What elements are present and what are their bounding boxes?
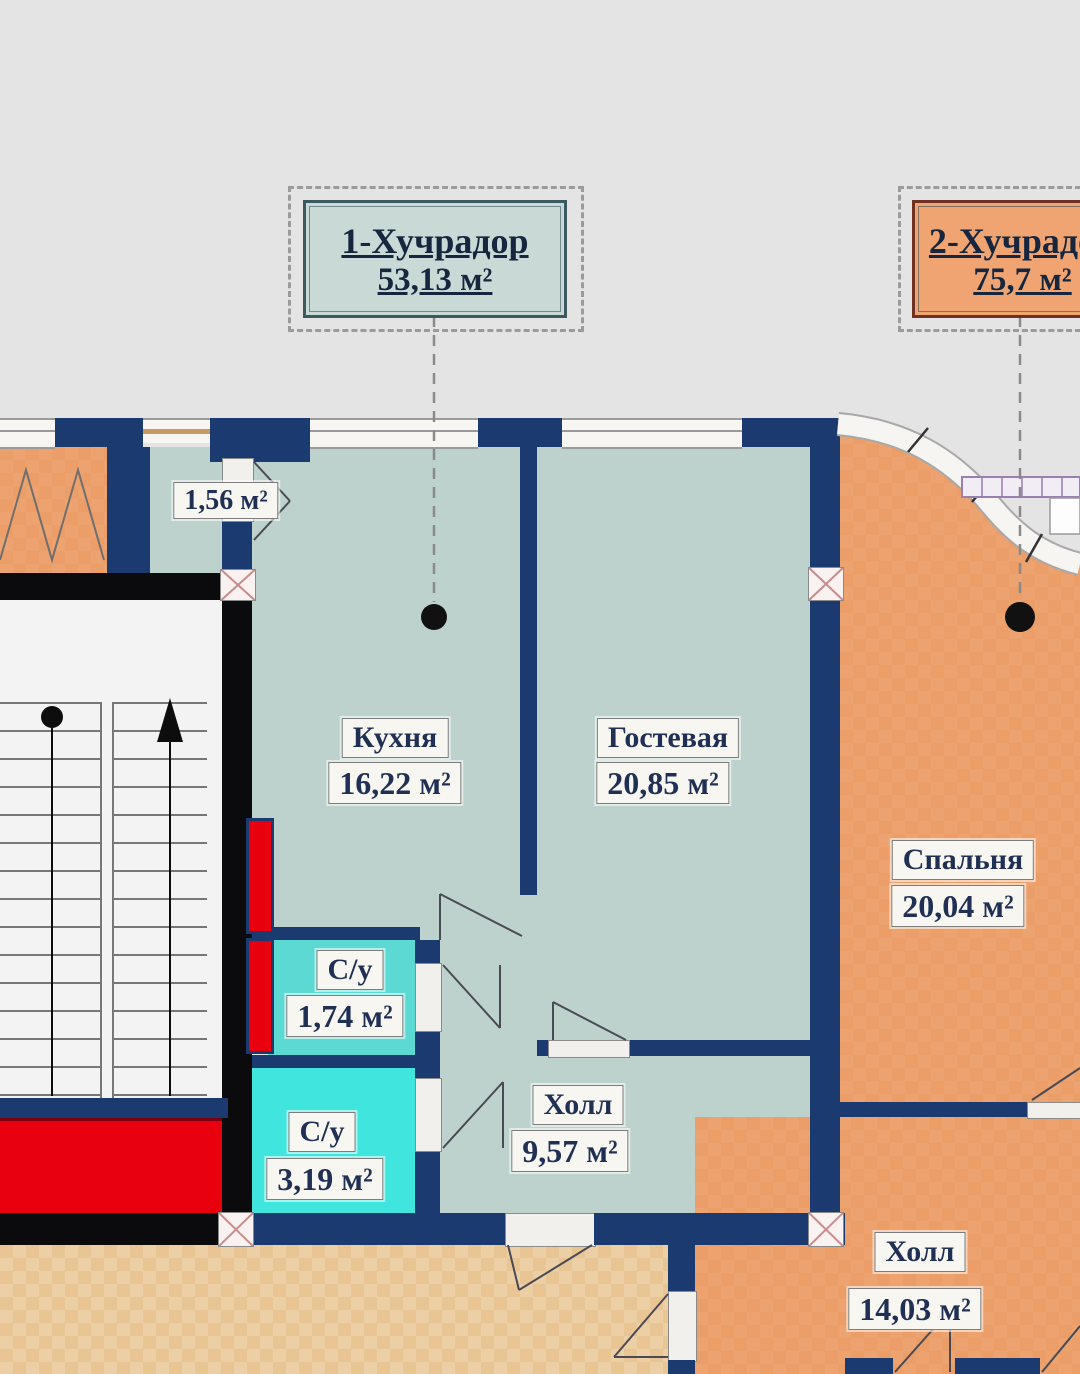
balcony-rail <box>143 418 210 443</box>
apartment2-label: 2-Хучрадор 75,7 м² <box>912 200 1080 318</box>
wall-stair-bottom-navy <box>0 1098 228 1118</box>
door-hall2-corridor <box>668 1291 697 1362</box>
door-wc1 <box>415 963 442 1032</box>
wc1-name-label: С/у <box>317 950 384 990</box>
room-kitchen <box>250 447 525 940</box>
door-apt1-entrance <box>505 1213 596 1247</box>
window-kitchen <box>310 418 478 449</box>
apartment1-label: 1-Хучрадор 53,13 м² <box>303 200 567 318</box>
wc2-area-label: 3,19 м² <box>266 1158 383 1200</box>
wall-apt1-right <box>810 447 840 1213</box>
window-living <box>562 418 742 449</box>
column-marker <box>808 1212 844 1247</box>
room-utility-topleft <box>0 447 107 573</box>
column-marker <box>220 569 256 601</box>
hall1-name-label: Холл <box>532 1085 623 1125</box>
wall-hall2-bottom-1 <box>845 1358 893 1374</box>
bedroom-name-label: Спальня <box>892 840 1034 880</box>
room-hall1-lobby <box>440 895 537 1056</box>
wall-wc-divider <box>248 1055 440 1068</box>
hall2-area-label: 14,03 м² <box>848 1288 981 1330</box>
apartment2-area: 75,7 м² <box>973 262 1071 299</box>
corridor <box>0 1245 695 1374</box>
wall-bedroom-hall2 <box>833 1102 1027 1117</box>
wc1-area-label: 1,74 м² <box>286 995 403 1037</box>
hall1-area-label: 9,57 м² <box>511 1130 628 1172</box>
wall-hall2-bottom-2 <box>955 1358 1040 1374</box>
wall-kitchen-living <box>520 447 537 895</box>
living-area-label: 20,85 м² <box>596 762 729 804</box>
room-bedroom <box>840 418 1080 1117</box>
elevator-shaft <box>0 1118 222 1216</box>
wall-stair-top <box>0 573 252 600</box>
vent-shaft-1 <box>246 818 274 934</box>
door-bedroom <box>1027 1102 1080 1119</box>
column-marker <box>808 567 844 601</box>
door-living <box>548 1040 630 1058</box>
wall-top-1 <box>55 418 143 447</box>
stair-flight-divider <box>100 702 114 1098</box>
vent-shaft-2 <box>246 938 274 1054</box>
window-top-left <box>0 418 55 449</box>
column-marker <box>218 1212 254 1247</box>
floor-plan: 1-Хучрадор 53,13 м² 2-Хучрадор 75,7 м² 1… <box>0 0 1080 1374</box>
kitchen-area-label: 16,22 м² <box>328 762 461 804</box>
bedroom-area-label: 20,04 м² <box>891 885 1024 927</box>
wc2-name-label: С/у <box>289 1112 356 1152</box>
hall2-name-label: Холл <box>874 1232 965 1272</box>
apartment1-area: 53,13 м² <box>378 262 493 299</box>
wall-balcony-left <box>107 447 150 573</box>
balcony-rail-line <box>143 429 210 434</box>
wall-top-3 <box>478 418 562 447</box>
living-name-label: Гостевая <box>597 718 739 758</box>
wall-corridor-hall2 <box>668 1245 695 1291</box>
apartment2-title: 2-Хучрадор <box>929 220 1080 262</box>
stair-treads <box>0 702 207 1098</box>
wall-corridor-hall2-stub <box>668 1360 695 1374</box>
wall-top-4 <box>742 418 840 447</box>
wall-stair-bottom <box>0 1213 222 1245</box>
door-wc2 <box>415 1078 442 1152</box>
apartment1-title: 1-Хучрадор <box>341 220 528 262</box>
balcony-area-label: 1,56 м² <box>173 482 278 519</box>
kitchen-name-label: Кухня <box>342 718 449 758</box>
wall-apt1-bottom-left <box>222 1213 505 1245</box>
